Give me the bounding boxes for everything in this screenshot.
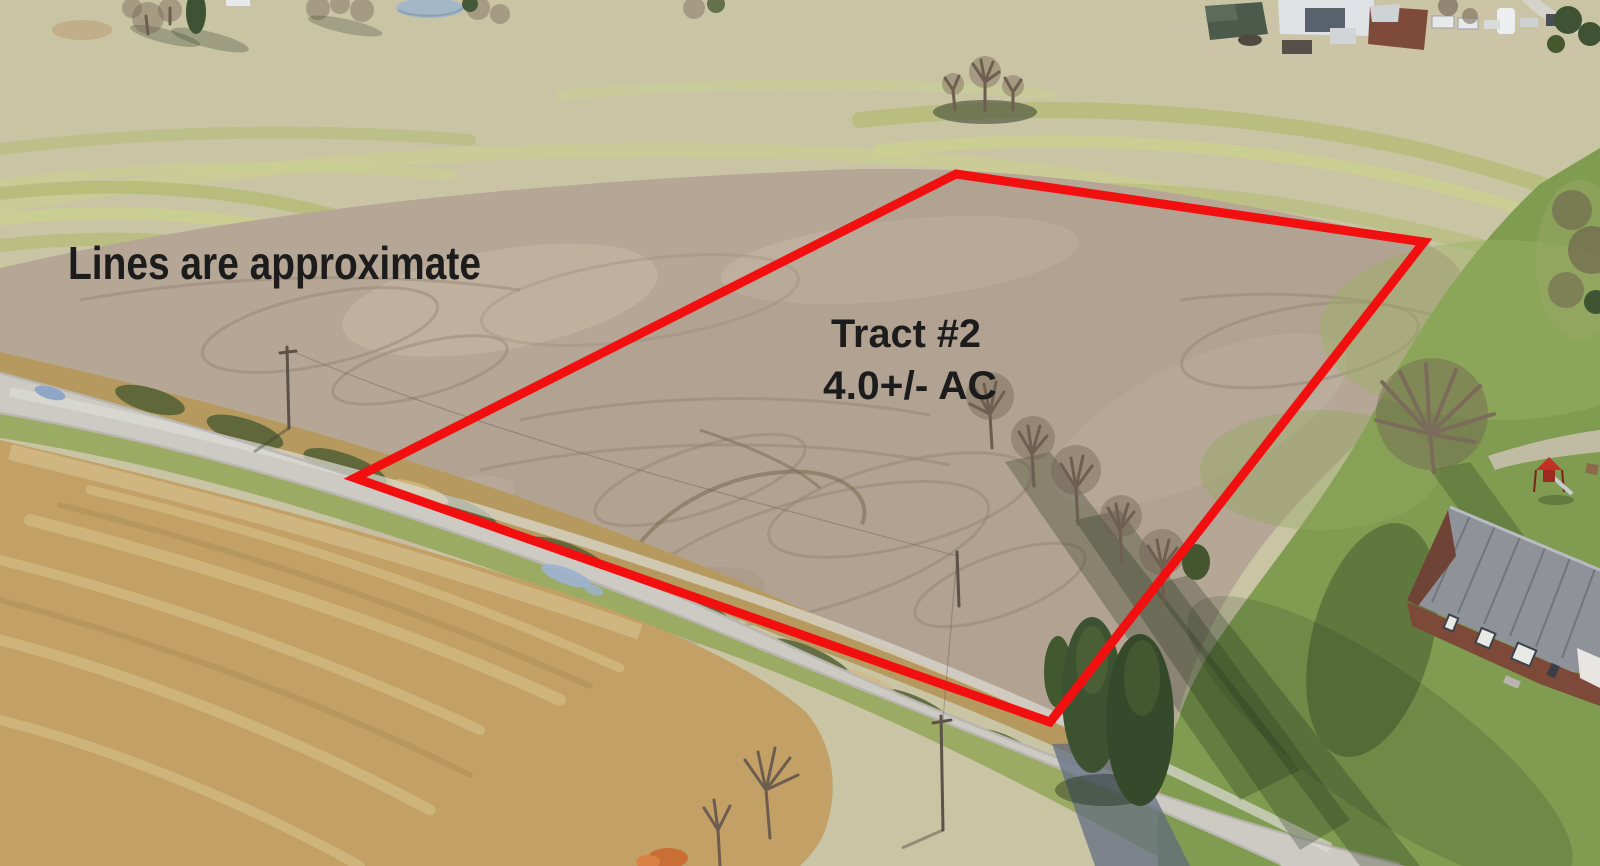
truck2 [1520,18,1538,27]
trailer [1432,16,1454,28]
truck [1484,20,1500,29]
camper [1330,28,1356,44]
yard-object [1585,463,1599,475]
farmstead [1160,0,1600,66]
approximation-disclaimer: Lines are approximate [68,237,481,289]
equipment [1282,40,1312,54]
distant-building [226,0,250,6]
tract-label: Tract #2 [831,312,981,356]
aerial-photo: Lines are approximate Tract #2 4.0+/- AC [0,0,1600,866]
acreage-label: 4.0+/- AC [823,364,997,408]
dirt-patch [52,20,112,40]
aerial-photo-canvas: Lines are approximate Tract #2 4.0+/- AC [0,0,1600,866]
